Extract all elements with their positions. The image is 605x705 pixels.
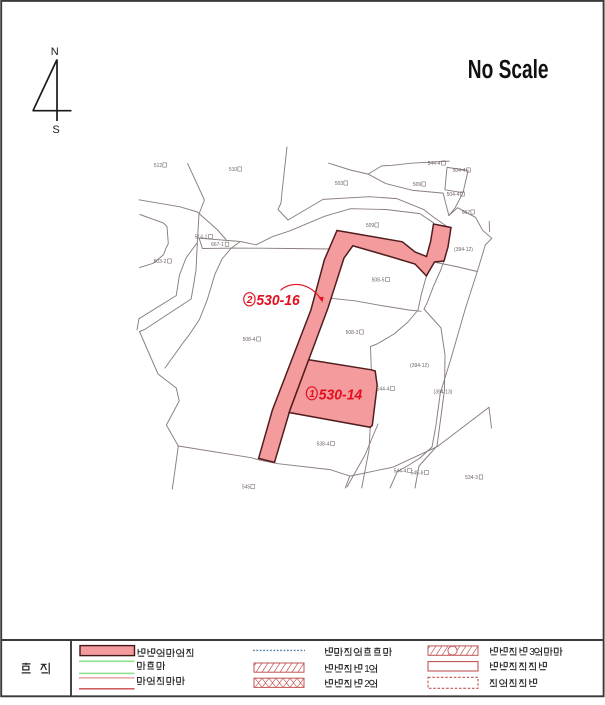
svg-text:508-4: 508-4 <box>243 337 256 343</box>
svg-text:510: 510 <box>229 167 238 173</box>
svg-text:512: 512 <box>154 163 163 169</box>
svg-text:538-4: 538-4 <box>317 441 330 447</box>
svg-text:667: 667 <box>462 210 471 216</box>
svg-text:S: S <box>52 124 59 136</box>
svg-text:544-4: 544-4 <box>428 161 441 167</box>
svg-text:667-1: 667-1 <box>211 242 224 248</box>
svg-text:3: 3 <box>529 647 535 658</box>
svg-text:509: 509 <box>366 223 375 229</box>
svg-text:1: 1 <box>364 664 370 675</box>
svg-text:2: 2 <box>246 295 253 306</box>
svg-text:514-1: 514-1 <box>195 234 208 240</box>
svg-text:No Scale: No Scale <box>468 55 549 83</box>
svg-text:504-4: 504-4 <box>447 192 460 198</box>
svg-text:509: 509 <box>413 182 422 188</box>
svg-text:544-4: 544-4 <box>377 386 390 392</box>
svg-text:503: 503 <box>335 181 344 187</box>
svg-text:534-3: 534-3 <box>465 475 478 481</box>
svg-text:530-16: 530-16 <box>256 292 300 309</box>
svg-text:545-6: 545-6 <box>411 470 424 476</box>
svg-text:544-4: 544-4 <box>394 468 407 474</box>
svg-text:(394-13): (394-13) <box>434 389 453 395</box>
svg-text:545: 545 <box>242 484 251 490</box>
svg-text:508-5: 508-5 <box>372 277 385 283</box>
svg-text:504-4: 504-4 <box>453 168 466 174</box>
svg-text:(394-12): (394-12) <box>410 363 429 369</box>
svg-text:N: N <box>51 46 59 58</box>
svg-text:530-14: 530-14 <box>319 387 362 404</box>
svg-text:2: 2 <box>364 679 370 690</box>
svg-text:1: 1 <box>309 389 315 400</box>
svg-text:503-2: 503-2 <box>154 259 167 265</box>
svg-text:508-3: 508-3 <box>346 330 359 336</box>
svg-text:(394-12): (394-12) <box>454 247 473 253</box>
